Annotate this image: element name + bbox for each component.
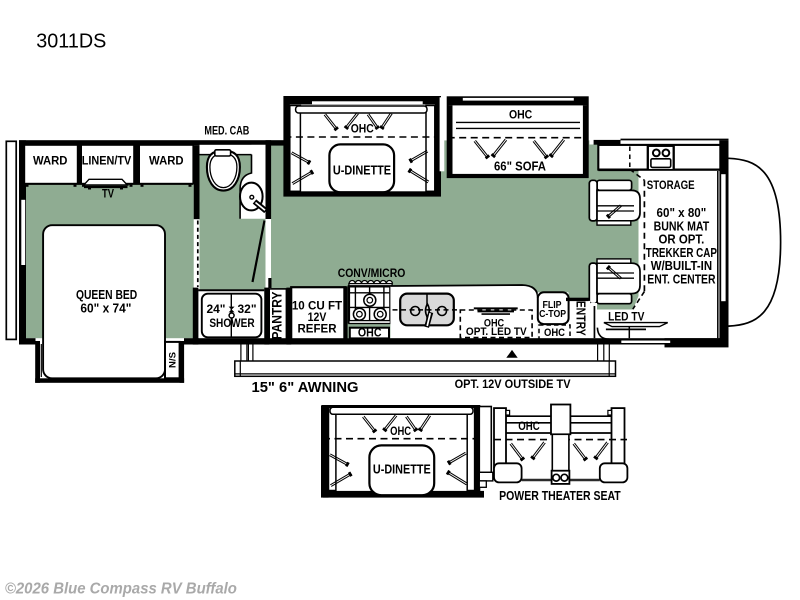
svg-text:TV: TV	[102, 186, 114, 200]
svg-text:OHC: OHC	[509, 110, 532, 122]
svg-text:OHC: OHC	[358, 328, 382, 340]
svg-text:PANTRY: PANTRY	[270, 292, 285, 340]
svg-text:WARD: WARD	[33, 153, 68, 167]
svg-text:32": 32"	[238, 302, 257, 316]
svg-text:LED TV: LED TV	[608, 312, 645, 324]
svg-text:WARD: WARD	[149, 153, 184, 167]
svg-text:CONV/MICRO: CONV/MICRO	[338, 266, 406, 280]
svg-text:POWER THEATER SEAT: POWER THEATER SEAT	[499, 488, 621, 503]
svg-text:OHC: OHC	[544, 327, 565, 339]
svg-text:3011DS: 3011DS	[36, 31, 106, 53]
svg-text:66" SOFA: 66" SOFA	[494, 159, 546, 173]
svg-text:N/S: N/S	[167, 352, 178, 368]
svg-text:60" x 74": 60" x 74"	[80, 302, 131, 316]
svg-text:QUEEN BED: QUEEN BED	[76, 288, 137, 302]
svg-text:15" 6" AWNING: 15" 6" AWNING	[252, 380, 359, 396]
svg-text:OHC: OHC	[351, 123, 374, 135]
svg-text:STORAGE: STORAGE	[647, 178, 695, 192]
svg-text:OHC: OHC	[390, 426, 411, 438]
svg-text:LINEN/TV: LINEN/TV	[82, 153, 132, 167]
svg-text:©2026 Blue Compass RV Buffalo: ©2026 Blue Compass RV Buffalo	[5, 580, 237, 597]
svg-text:U-DINETTE: U-DINETTE	[373, 461, 431, 476]
svg-text:OPT. 12V OUTSIDE TV: OPT. 12V OUTSIDE TV	[455, 377, 571, 391]
svg-text:ENT. CENTER: ENT. CENTER	[647, 272, 716, 287]
svg-text:OHC: OHC	[518, 421, 539, 433]
svg-text:REFER: REFER	[298, 321, 337, 335]
svg-text:C-TOP: C-TOP	[539, 308, 566, 320]
svg-text:U-DINETTE: U-DINETTE	[333, 163, 391, 178]
svg-text:MED. CAB: MED. CAB	[204, 126, 249, 138]
svg-text:24": 24"	[206, 302, 225, 316]
svg-text:OPT. LED TV: OPT. LED TV	[466, 326, 527, 338]
svg-text:SHOWER: SHOWER	[209, 316, 255, 330]
svg-text:ENTRY: ENTRY	[574, 301, 588, 337]
